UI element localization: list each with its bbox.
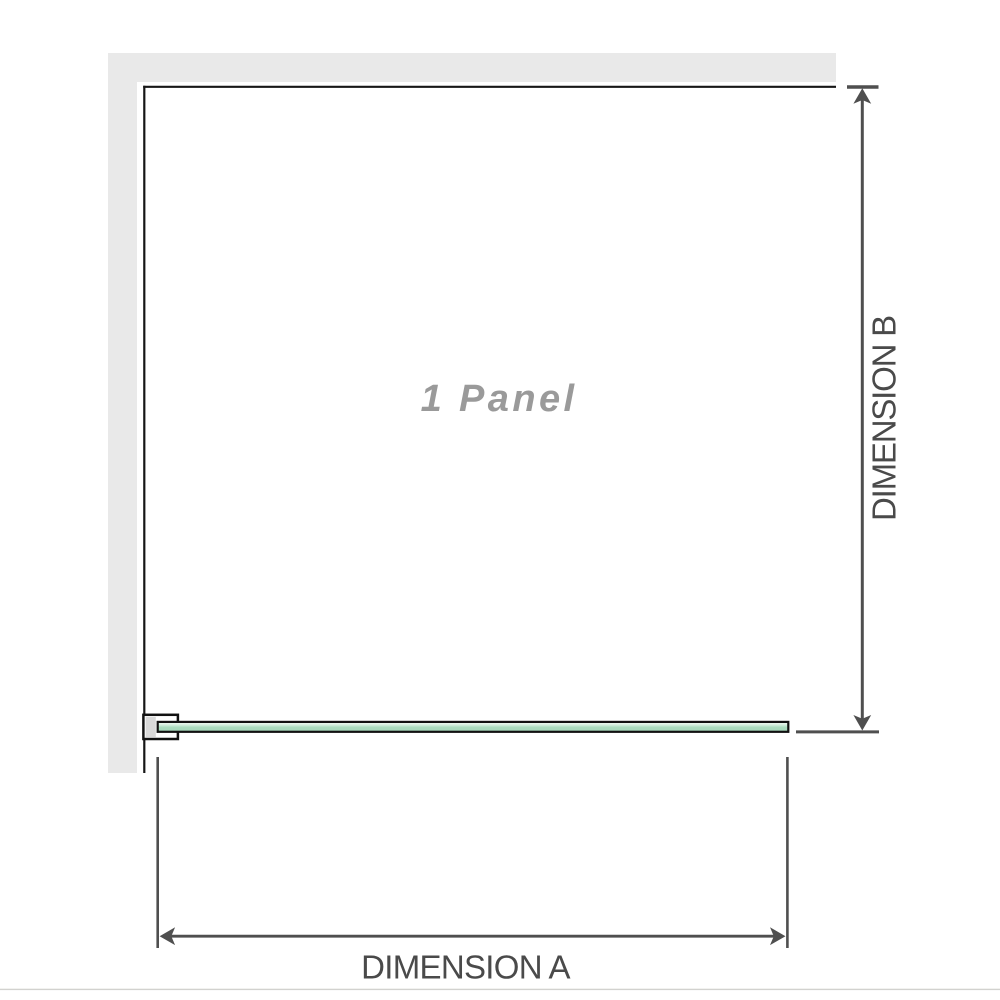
svg-text:1 Panel: 1 Panel — [421, 378, 578, 420]
svg-text:DIMENSION A: DIMENSION A — [361, 949, 570, 986]
svg-text:DIMENSION B: DIMENSION B — [866, 316, 903, 521]
